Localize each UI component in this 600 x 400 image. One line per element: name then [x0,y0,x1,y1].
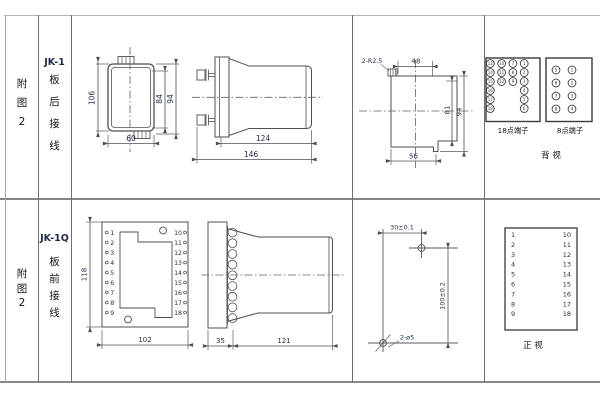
terminal-number: 11 [563,241,571,249]
dimension-124: 124 [221,130,312,148]
terminal-number: 13 [488,61,494,66]
terminal-number: 4 [110,260,114,267]
terminal-number: 11 [499,70,505,75]
jk1-case-top-view: 106 84 94 60 [82,42,194,178]
radius-callout: 2-R2.5 [362,58,389,71]
left-terminal-circles [105,231,108,314]
row2-wiring-label: 板 前 接 线 [38,256,71,319]
terminal-number: 6 [523,106,526,111]
terminal-block-18: 131071 141182 151293 164 175 186 18点端子 [486,58,540,135]
wiring-char: 后 [49,96,60,108]
terminal-number: 5 [511,271,515,279]
rear-view-terminal-blocks: 131071 141182 151293 164 175 186 18点端子 5… [480,52,600,164]
dim-label-94: 94 [166,94,175,104]
terminal-number: 17 [488,97,494,102]
dim-label-2xd5: 2-ø5 [400,334,414,342]
terminal-number: 3 [110,250,114,257]
terminal-number: 9 [511,310,515,318]
terminal-number: 18 [563,310,571,318]
terminal-stud-bottom [197,114,215,126]
terminal-number: 14 [174,270,182,277]
jk1-case-side-view: 124 146 [190,40,340,178]
wiring-char: 接 [49,118,60,130]
terminal-number: 7 [110,290,114,297]
terminal-number: 7 [512,61,515,66]
terminal-number: 2 [523,70,526,75]
terminal-number: 12 [499,79,505,84]
terminal-number: 9 [512,79,515,84]
terminal-number: 5 [555,68,558,74]
rear-view-label: 背 视 [541,150,561,161]
dim-label-2-R2.5: 2-R2.5 [362,58,383,65]
dim-label-48: 48 [412,58,421,66]
hole-diameter-callout: 2-ø5 [376,334,415,352]
dim-label-146: 146 [244,150,259,159]
terminal-number: 6 [110,280,114,287]
dimension-60: 60 [108,134,154,148]
figure-char: 2 [19,116,26,128]
dimension-56: 56 [391,149,436,165]
terminal-number: 7 [511,290,515,298]
terminal-number: 10 [563,231,571,239]
terminal-number: 17 [174,300,182,307]
terminal-number: 1 [110,230,114,237]
terminal-number: 2 [511,241,515,249]
terminal-number: 1 [523,61,526,66]
terminal-number: 15 [563,281,571,289]
jk1-panel-cutout-view: 2-R2.5 48 81 94 56 [355,40,477,176]
dim-label-35: 35 [216,337,225,345]
terminal-number: 10 [174,230,182,237]
table-border-left [5,15,6,382]
terminal-number: 12 [174,250,182,257]
right-terminal-circles [184,231,187,314]
terminal-stud-top [197,69,215,81]
figure-char: 图 [17,97,28,109]
terminal-table-right-column: 10 11 12 13 14 15 16 17 18 [563,231,571,318]
wiring-char: 线 [49,140,60,152]
terminal-number: 16 [563,290,571,298]
terminal-number: 8 [555,107,558,113]
terminal-number: 6 [555,81,558,87]
left-terminal-numbers: 1 2 3 4 5 6 7 8 9 [110,230,114,317]
terminal-number: 13 [174,260,182,267]
table-row-divider [0,198,600,200]
front-view-label: 正 视 [523,340,543,351]
wiring-char: 线 [49,307,60,319]
drilling-pattern-view: 30±0.1 100±0.2 2-ø5 [360,212,472,358]
terminal-number: 18 [488,106,494,111]
terminal-number: 7 [555,94,558,100]
wiring-char: 板 [49,74,60,86]
dimension-30: 30±0.1 [383,224,422,234]
terminal-number: 8 [512,70,515,75]
terminal-number: 8 [511,300,515,308]
table-border-bottom [0,381,600,383]
dimension-121: 121 [233,315,333,350]
figure-char: 2 [19,297,26,309]
dimension-35: 35 [208,330,233,350]
top-terminal-screw [118,57,134,65]
row2-model-label: JK-1Q [38,233,71,244]
terminal-number: 16 [174,290,182,297]
dimension-118: 118 [81,222,103,327]
jk1q-side-view: 35 121 [198,212,350,358]
mounting-hole [160,227,167,234]
terminal-number: 14 [488,70,494,75]
dim-label-94: 94 [456,107,464,116]
cutout-tab [388,69,397,76]
table-col-divider-3 [352,15,353,382]
terminal-numbers-18: 131071 141182 151293 164 175 186 [488,61,526,111]
dimension-106: 106 [88,62,110,132]
technical-drawing-sheet: 附 图 2 JK-1 板 后 接 线 附 图 2 JK-1Q 板 前 接 线 [0,0,600,400]
figure-char: 附 [17,268,28,280]
terminal-circles-18 [486,60,528,113]
mounting-hole [125,316,132,323]
terminal-block-8-label: 8点端子 [557,126,583,135]
terminal-number: 16 [488,88,494,93]
terminal-number: 11 [174,240,182,247]
figure-char: 附 [17,78,28,90]
terminal-table-left-column: 1 2 3 4 5 6 7 8 9 [511,231,515,318]
dim-label-60: 60 [126,134,136,143]
terminal-number: 3 [511,251,515,259]
right-terminal-numbers: 10 11 12 13 14 15 16 17 18 [174,230,182,317]
table-border-top [4,15,600,16]
terminal-number: 4 [523,88,526,93]
terminal-number: 3 [523,79,526,84]
dim-label-84: 84 [155,94,164,104]
terminal-number: 15 [488,79,494,84]
terminal-block-18-label: 18点端子 [498,126,529,135]
terminal-number: 9 [110,310,114,317]
terminal-number: 3 [571,94,574,100]
terminal-number: 8 [110,300,114,307]
dim-label-106: 106 [88,91,97,106]
dim-label-102: 102 [138,336,151,344]
terminal-number: 2 [110,240,114,247]
table-col-divider-1 [38,15,39,382]
terminal-block-8: 51 62 73 84 8点端子 [546,58,592,135]
row1-figure-label: 附 图 2 [6,78,38,128]
terminal-number: 10 [499,61,505,66]
terminal-number: 2 [571,81,574,87]
dimension-100: 100±0.2 [439,248,449,343]
jk1q-front-view: 1 2 3 4 5 6 7 8 9 10 11 12 13 14 15 16 1… [80,212,208,358]
terminal-number: 15 [174,280,182,287]
terminal-number: 17 [563,300,571,308]
row1-wiring-label: 板 后 接 线 [38,74,71,152]
terminal-number: 18 [174,310,182,317]
dimension-146: 146 [197,127,312,164]
dim-label-124: 124 [256,134,271,143]
dimension-102: 102 [102,330,188,349]
inner-stepped-outline [120,232,172,318]
figure-char: 图 [17,283,28,295]
dim-label-118: 118 [81,268,89,281]
dim-label-81: 81 [444,106,452,115]
terminal-number: 5 [110,270,114,277]
terminal-number: 4 [571,107,574,113]
dim-label-56: 56 [409,153,418,161]
mounting-holes [125,227,167,323]
terminal-number: 1 [571,68,574,74]
row1-model-label: JK-1 [38,57,71,68]
row2-figure-label: 附 图 2 [6,268,38,309]
dim-label-121: 121 [277,337,290,345]
dimension-48: 48 [398,58,433,77]
wiring-char: 前 [49,273,60,285]
wiring-char: 接 [49,290,60,302]
bottom-terminal-screw [134,131,150,139]
case-outline [108,64,154,131]
front-view-terminal-table: 1 2 3 4 5 6 7 8 9 10 11 12 13 14 15 16 1… [495,218,600,354]
terminal-number: 5 [523,97,526,102]
dim-label-100: 100±0.2 [439,282,447,310]
terminal-number: 6 [511,281,515,289]
table-col-divider-2 [71,15,72,382]
terminal-number: 4 [511,261,515,269]
wiring-char: 板 [49,256,60,268]
terminal-number: 12 [563,251,571,259]
dim-label-30: 30±0.1 [390,224,414,232]
terminal-number: 1 [511,231,515,239]
terminal-number: 14 [563,271,571,279]
terminal-number: 13 [563,261,571,269]
